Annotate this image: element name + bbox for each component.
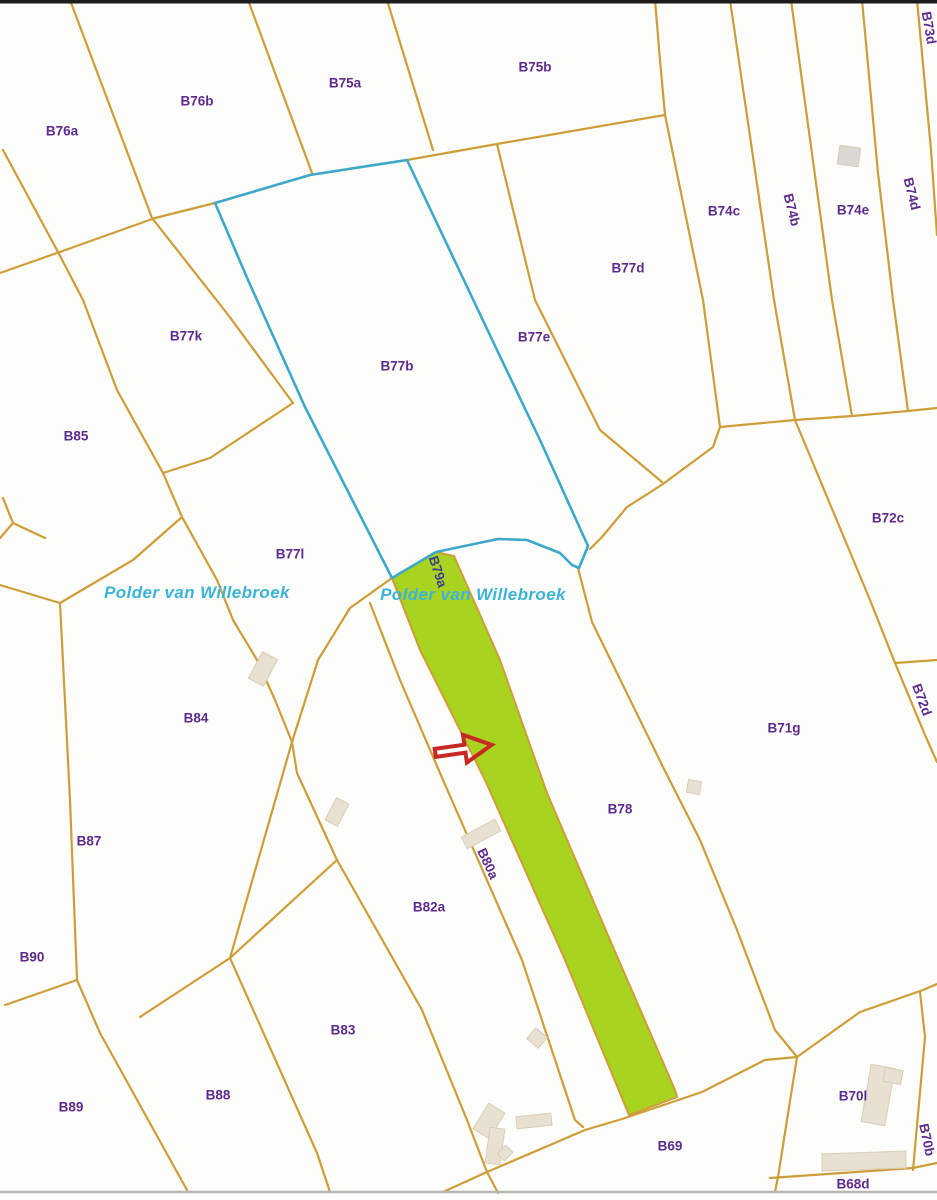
building-footprint [822, 1151, 907, 1171]
area-name-text: Polder van Willebroek [380, 585, 567, 604]
area-name-text: Polder van Willebroek [104, 583, 291, 602]
parcel-label-b70l: B70l [839, 1089, 868, 1104]
parcel-label-b68d: B68d [836, 1177, 869, 1192]
parcel-label-b77e: B77e [518, 330, 551, 345]
parcel-label-b72c: B72c [872, 511, 905, 526]
parcel-label-b87: B87 [77, 834, 102, 849]
parcel-label-b82a: B82a [413, 900, 446, 915]
building-footprint [686, 779, 701, 794]
parcel-label-b75a: B75a [329, 76, 362, 91]
parcel-label-b90: B90 [20, 950, 45, 965]
parcel-label-b84: B84 [184, 711, 209, 726]
parcel-label-b77l: B77l [276, 547, 305, 562]
parcel-label-b83: B83 [331, 1023, 356, 1038]
map-canvas: Polder van WillebroekPolder van Willebro… [0, 0, 937, 1200]
building-footprint [837, 145, 860, 167]
parcel-label-b75b: B75b [518, 60, 551, 75]
parcel-label-b74e: B74e [837, 203, 870, 218]
parcel-label-b76b: B76b [180, 94, 213, 109]
cadastral-map[interactable]: Polder van WillebroekPolder van Willebro… [0, 0, 937, 1200]
parcel-label-b77d: B77d [611, 261, 644, 276]
parcel-label-b89: B89 [59, 1100, 84, 1115]
parcel-label-b78: B78 [608, 802, 633, 817]
parcel-label-b77b: B77b [380, 359, 413, 374]
parcel-label-b71g: B71g [767, 721, 800, 736]
parcel-label-b85: B85 [64, 429, 89, 444]
parcel-label-b69: B69 [658, 1139, 683, 1154]
parcel-label-b74c: B74c [708, 204, 741, 219]
parcel-label-b76a: B76a [46, 124, 79, 139]
parcel-label-b77k: B77k [170, 329, 203, 344]
top-border [0, 0, 937, 4]
parcel-label-b88: B88 [206, 1088, 231, 1103]
building-footprint [883, 1068, 903, 1085]
